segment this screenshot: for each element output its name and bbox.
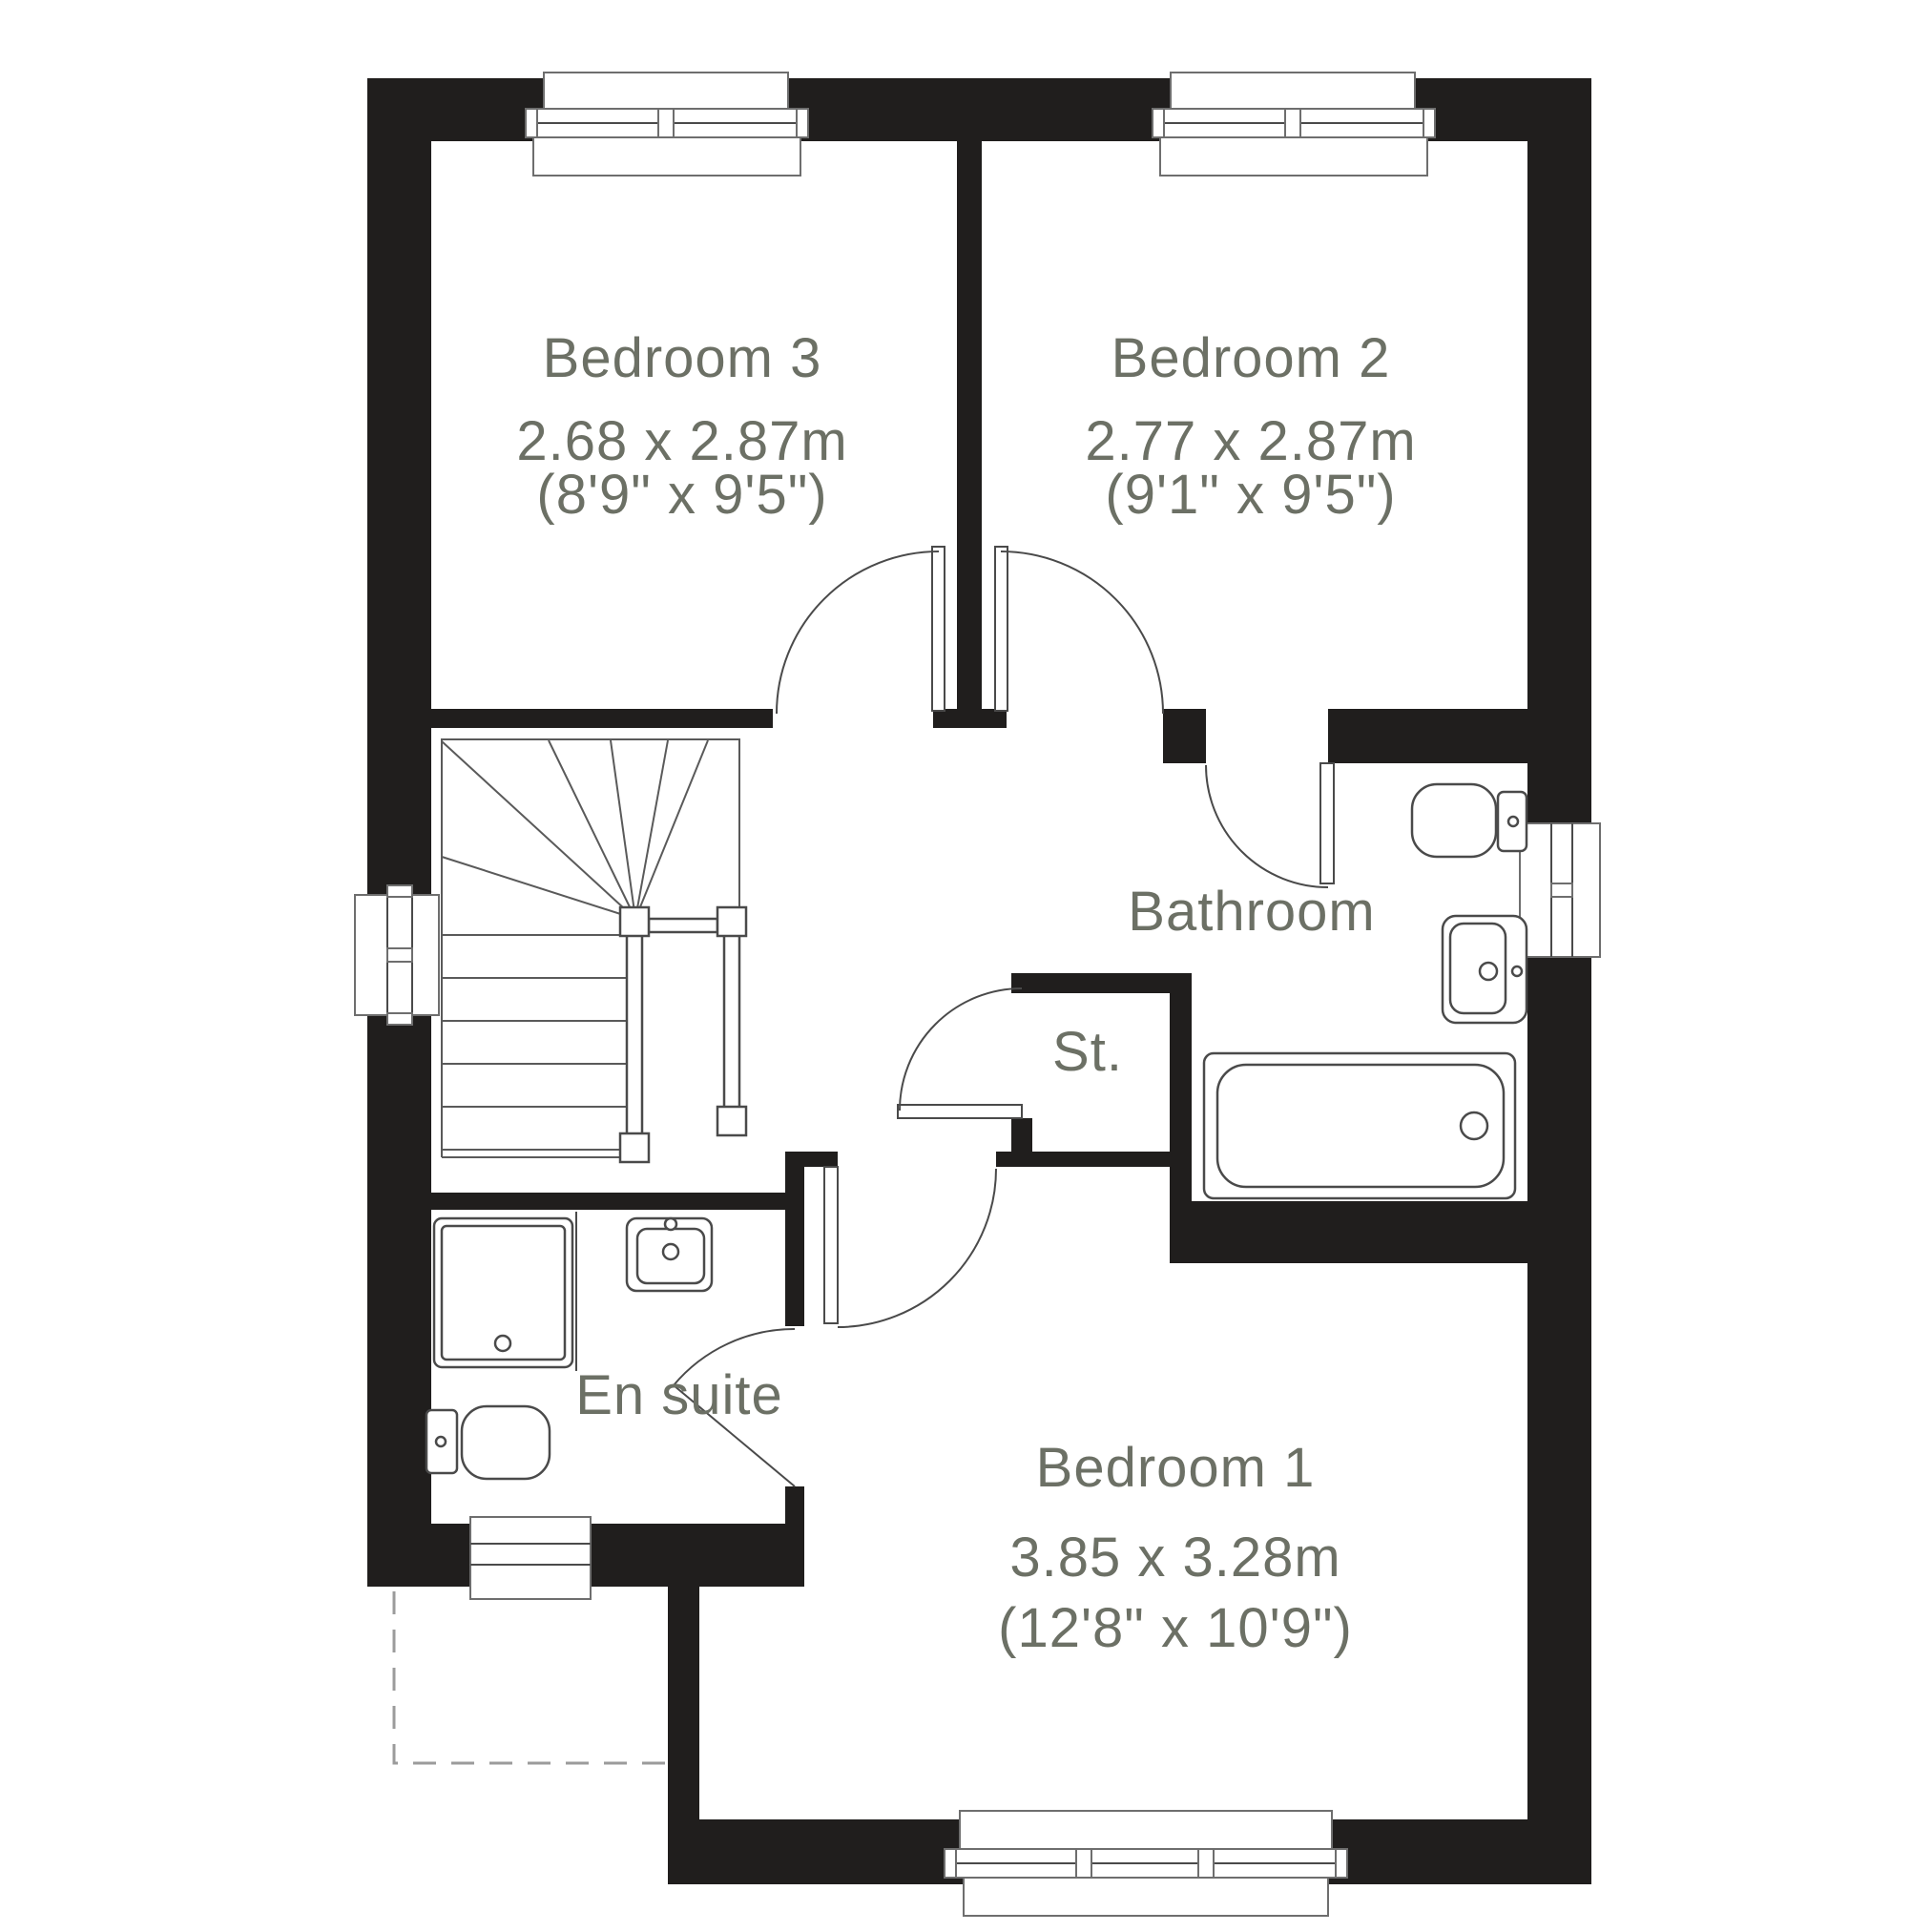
wall-bedroom1-left [668, 1587, 699, 1819]
bathroom-sink [1443, 916, 1527, 1023]
window-bedroom1 [945, 1811, 1347, 1916]
label-bedroom2-name: Bedroom 2 [1111, 327, 1391, 389]
stair-newel-post [717, 1107, 746, 1135]
label-bedroom2-imperial: (9'1" x 9'5") [1105, 464, 1396, 526]
stair-handrail-inner [627, 932, 642, 1148]
wall-below-bathroom [1170, 1201, 1527, 1263]
doors [674, 547, 1334, 1486]
wall-bed2-bed3-divider [957, 141, 982, 727]
label-bedroom3-imperial: (8'9" x 9'5") [536, 464, 827, 526]
label-bedroom1-name: Bedroom 1 [1036, 1437, 1316, 1499]
wall-ensuite-right-upper [785, 1152, 804, 1326]
door-bedroom1 [824, 1167, 996, 1327]
label-storage: St. [1052, 1021, 1123, 1083]
wall-bathroom-top-left [1163, 709, 1206, 763]
staircase [442, 739, 746, 1162]
stair-newel-post [717, 907, 746, 936]
bathroom-toilet [1412, 784, 1527, 857]
wall-ensuite-top [431, 1193, 785, 1210]
label-bedroom1-metric: 3.85 x 3.28m [1009, 1527, 1340, 1589]
dashed-roof-outline [394, 1591, 668, 1763]
wall-storage-top [1011, 973, 1192, 993]
floor-plan-drawing: Bedroom 3 2.68 x 2.87m (8'9" x 9'5") Bed… [0, 0, 1932, 1932]
label-ensuite: En suite [575, 1364, 783, 1426]
door-bedroom2 [995, 547, 1163, 714]
window-bedroom2 [1153, 73, 1435, 176]
wall-left [367, 78, 431, 1587]
ensuite-shower [434, 1212, 576, 1371]
wall-right [1527, 141, 1591, 1884]
wall-below-storage [996, 1152, 1170, 1167]
wall-landing-top-left [431, 709, 773, 728]
window-stairs [355, 885, 439, 1025]
wall-ensuite-right-lower [785, 1486, 804, 1587]
label-bedroom3-name: Bedroom 3 [543, 327, 822, 389]
stair-handrail-outer [724, 932, 739, 1118]
floor-plan-page: Bedroom 3 2.68 x 2.87m (8'9" x 9'5") Bed… [0, 0, 1932, 1932]
door-bedroom3 [777, 547, 945, 714]
wall-bathroom-left [1170, 973, 1192, 1201]
label-bedroom1-imperial: (12'8" x 10'9") [998, 1597, 1353, 1659]
ensuite-sink [627, 1218, 712, 1291]
ensuite-toilet [426, 1406, 550, 1479]
stair-newel-post [620, 1133, 649, 1162]
door-storage [898, 988, 1022, 1118]
window-bathroom [1520, 823, 1600, 957]
wall-bathroom-top-right [1328, 709, 1527, 763]
stair-newel-post [620, 907, 649, 936]
window-ensuite [470, 1517, 591, 1599]
bathtub [1204, 1053, 1515, 1198]
stair-handrail-top [649, 919, 717, 932]
label-bathroom: Bathroom [1128, 881, 1375, 943]
window-bedroom3 [526, 73, 808, 176]
door-bathroom [1206, 763, 1334, 887]
